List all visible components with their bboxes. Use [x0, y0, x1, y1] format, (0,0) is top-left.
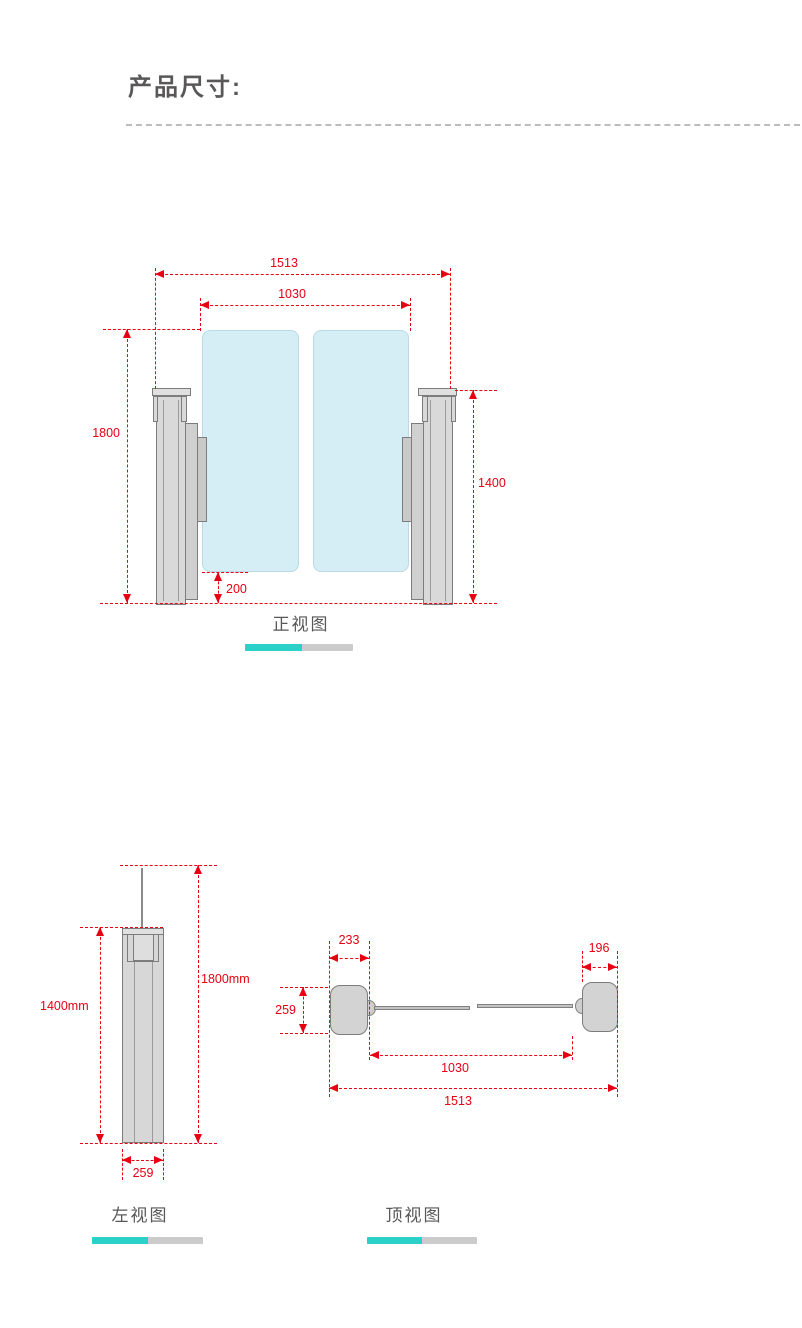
dim-line	[473, 390, 474, 603]
arrowhead-up-icon	[299, 987, 307, 996]
ground-line	[100, 603, 497, 604]
ground-line	[80, 1143, 217, 1144]
front-right-pedestal-neck	[422, 396, 428, 422]
dim-front-cabinet-height: 1400	[478, 477, 518, 490]
dim-side-depth: 259	[128, 1167, 158, 1180]
arrowhead-right-icon	[154, 1156, 163, 1164]
dim-line	[127, 329, 128, 603]
arrowhead-left-icon	[155, 270, 164, 278]
extension-line	[369, 941, 370, 1060]
extension-line	[280, 1033, 328, 1034]
top-view-caption: 顶视图	[370, 1206, 458, 1226]
dim-side-total-height: 1800mm	[201, 973, 251, 986]
arrowhead-up-icon	[469, 390, 477, 399]
dim-line	[198, 865, 199, 1143]
arrowhead-right-icon	[563, 1051, 572, 1059]
extension-line	[617, 951, 618, 1097]
front-left-pedestal-neck	[153, 396, 158, 422]
arrowhead-down-icon	[96, 1134, 104, 1143]
arrowhead-left-icon	[329, 1084, 338, 1092]
dim-line	[100, 927, 101, 1143]
dim-top-left-cabinet-width: 233	[326, 934, 372, 947]
extension-line	[80, 927, 163, 928]
arrowhead-up-icon	[214, 572, 222, 581]
extension-line	[103, 329, 200, 330]
dim-line	[329, 1088, 617, 1089]
front-left-pedestal-neck	[181, 396, 187, 422]
side-view-caption: 左视图	[96, 1206, 184, 1226]
dim-front-lane-width: 1030	[262, 288, 322, 301]
extension-line	[329, 941, 330, 1097]
dim-front-glass-clearance: 200	[226, 583, 256, 596]
front-view-caption: 正视图	[253, 615, 349, 635]
top-view-accent-bar	[367, 1237, 477, 1244]
dim-line	[370, 1055, 572, 1056]
arrowhead-right-icon	[608, 1084, 617, 1092]
arrowhead-right-icon	[360, 954, 369, 962]
arrowhead-left-icon	[582, 963, 591, 971]
arrowhead-left-icon	[370, 1051, 379, 1059]
dim-line	[200, 305, 410, 306]
dim-side-cabinet-height: 1400mm	[40, 1000, 88, 1013]
extension-line	[200, 298, 201, 331]
extension-line	[572, 1036, 573, 1060]
product-dimensions-drawing: 产品尺寸: 1513 1030 1800 1400 200	[0, 0, 802, 1328]
front-glass-wing-right	[313, 330, 409, 572]
dim-line	[155, 274, 450, 275]
arrowhead-down-icon	[214, 594, 222, 603]
arrowhead-down-icon	[194, 1134, 202, 1143]
top-left-pedestal	[330, 985, 368, 1035]
extension-line	[163, 1149, 164, 1180]
front-left-pedestal-seam	[163, 400, 164, 601]
front-glass-wing-left	[202, 330, 299, 572]
page-title: 产品尺寸:	[128, 76, 242, 100]
extension-line	[410, 298, 411, 331]
front-right-pedestal-seam	[430, 400, 431, 601]
side-view-accent-bar	[92, 1237, 203, 1244]
arrowhead-up-icon	[96, 927, 104, 936]
extension-line	[120, 865, 217, 866]
side-clamp-block	[133, 934, 154, 961]
side-pedestal-seam	[152, 962, 153, 1142]
dim-top-overall-width: 1513	[428, 1095, 488, 1108]
top-left-swing-arm	[374, 1006, 470, 1010]
arrowhead-right-icon	[441, 270, 450, 278]
front-left-pedestal-body	[156, 396, 186, 605]
arrowhead-up-icon	[123, 329, 131, 338]
top-right-pedestal	[582, 982, 618, 1032]
arrowhead-right-icon	[608, 963, 617, 971]
title-underline	[126, 124, 800, 126]
dim-front-overall-width: 1513	[254, 257, 314, 270]
front-left-pedestal-cap	[152, 388, 191, 396]
dim-top-cabinet-depth: 259	[266, 1004, 296, 1017]
arrowhead-left-icon	[329, 954, 338, 962]
side-glass-edge	[141, 868, 143, 928]
arrowhead-down-icon	[469, 594, 477, 603]
arrowhead-left-icon	[122, 1156, 131, 1164]
extension-line	[202, 572, 248, 573]
front-left-pedestal-seam	[178, 400, 179, 601]
extension-line	[122, 1149, 123, 1180]
front-left-pedestal-side-panel	[184, 423, 198, 600]
arrowhead-up-icon	[194, 865, 202, 874]
arrowhead-down-icon	[299, 1024, 307, 1033]
front-right-pedestal-neck	[451, 396, 456, 422]
side-pedestal-seam	[134, 962, 135, 1142]
arrowhead-right-icon	[401, 301, 410, 309]
top-right-swing-arm	[477, 1004, 573, 1008]
arrowhead-left-icon	[200, 301, 209, 309]
extension-line	[450, 268, 451, 389]
front-view-accent-bar	[245, 644, 353, 651]
front-right-pedestal-body	[423, 396, 453, 605]
dim-front-total-height: 1800	[84, 427, 120, 440]
front-right-pedestal-cap	[418, 388, 457, 396]
front-right-pedestal-seam	[445, 400, 446, 601]
arrowhead-down-icon	[123, 594, 131, 603]
extension-line	[582, 951, 583, 982]
dim-top-lane-width: 1030	[425, 1062, 485, 1075]
